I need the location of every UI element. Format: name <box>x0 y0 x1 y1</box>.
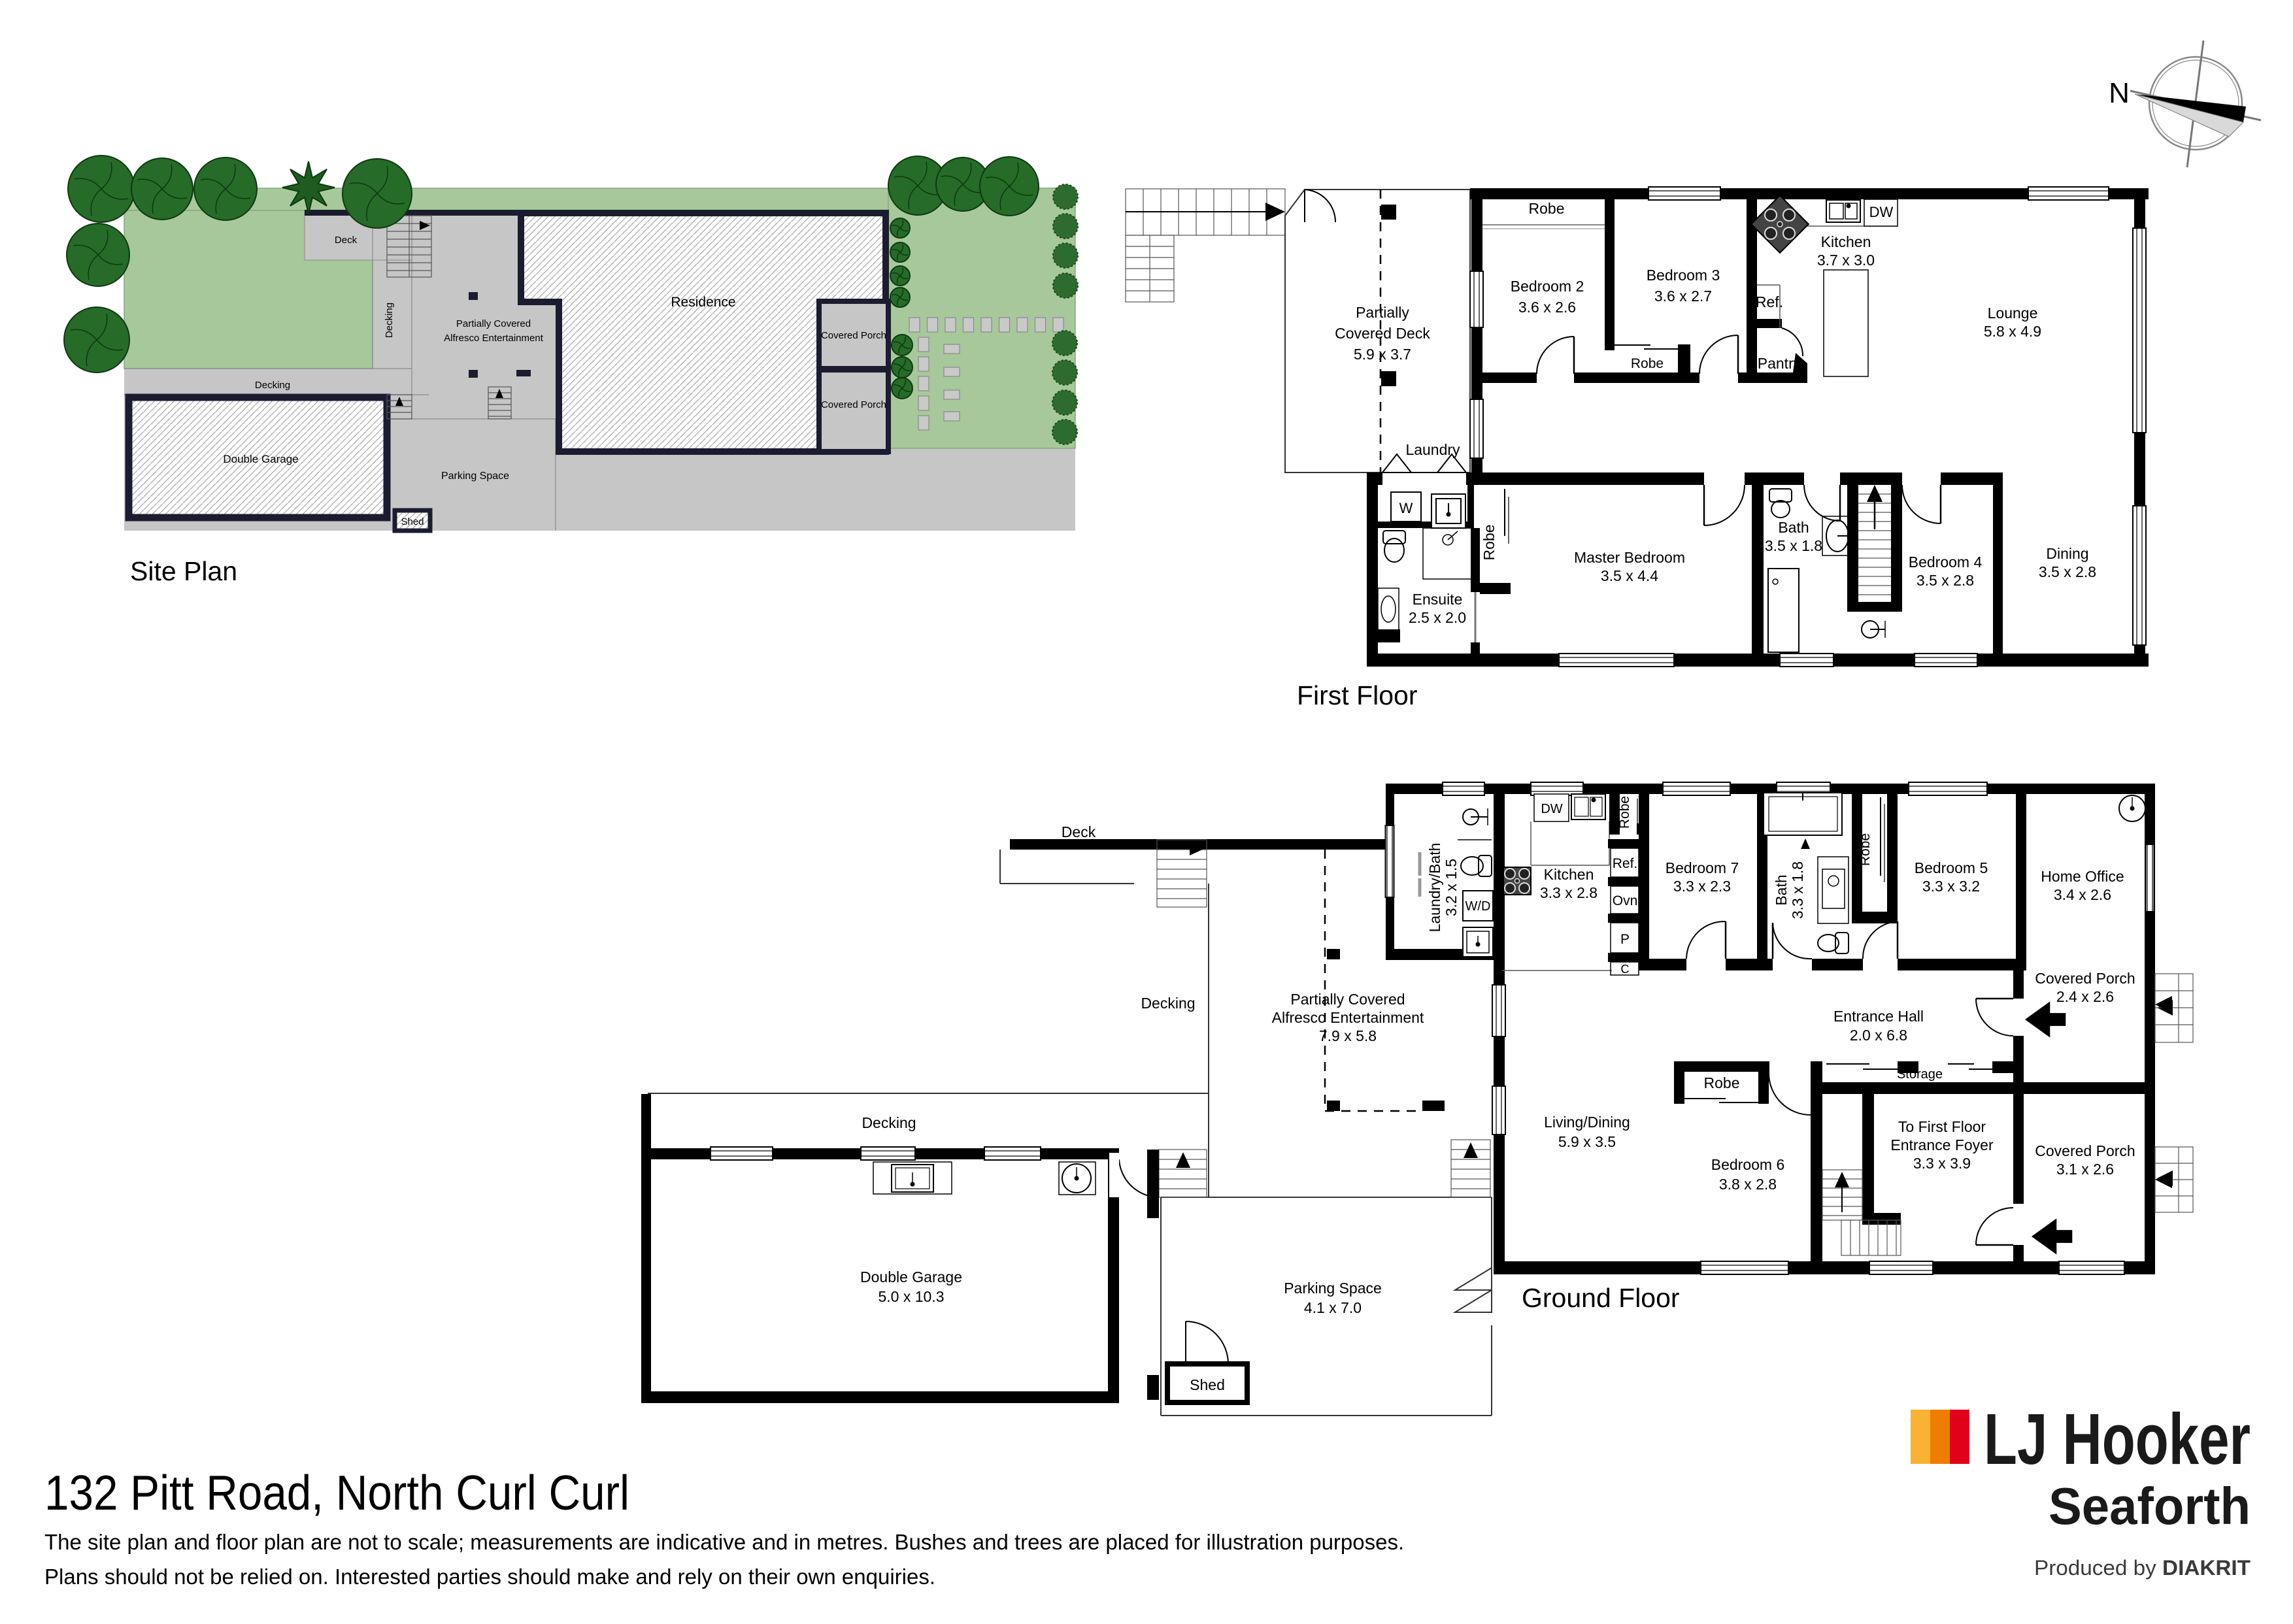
svg-text:3.2 x 1.5: 3.2 x 1.5 <box>1443 859 1460 916</box>
svg-text:First Floor: First Floor <box>1297 680 1418 710</box>
svg-text:3.3 x 1.8: 3.3 x 1.8 <box>1789 861 1806 919</box>
svg-text:Living/Dining: Living/Dining <box>1544 1114 1630 1131</box>
svg-text:Shed: Shed <box>1190 1376 1225 1393</box>
svg-text:Seaforth: Seaforth <box>2049 1477 2251 1535</box>
svg-text:3.6 x 2.6: 3.6 x 2.6 <box>1518 299 1576 316</box>
svg-text:5.9 x 3.7: 5.9 x 3.7 <box>1354 346 1411 363</box>
svg-text:Ref.: Ref. <box>1756 293 1783 310</box>
svg-text:Robe: Robe <box>1481 525 1498 561</box>
svg-text:Robe: Robe <box>1529 200 1565 217</box>
svg-text:7.9 x 5.8: 7.9 x 5.8 <box>1319 1027 1377 1044</box>
svg-text:Laundry: Laundry <box>1405 441 1460 458</box>
svg-text:Parking Space: Parking Space <box>441 471 509 482</box>
svg-text:3.7 x 3.0: 3.7 x 3.0 <box>1817 252 1875 269</box>
svg-text:Kitchen: Kitchen <box>1544 866 1594 883</box>
svg-text:Master Bedroom: Master Bedroom <box>1574 549 1685 566</box>
svg-text:3.8 x 2.8: 3.8 x 2.8 <box>1719 1176 1777 1193</box>
svg-text:Laundry/Bath: Laundry/Bath <box>1426 843 1443 933</box>
svg-text:Pantry: Pantry <box>1758 355 1801 372</box>
svg-text:Partially Covered: Partially Covered <box>1290 991 1405 1008</box>
svg-text:Partially: Partially <box>1356 304 1409 321</box>
svg-text:Decking: Decking <box>384 303 395 338</box>
svg-text:3.6 x 2.7: 3.6 x 2.7 <box>1654 288 1712 305</box>
svg-text:Shed: Shed <box>401 516 424 527</box>
svg-text:Entrance Foyer: Entrance Foyer <box>1890 1136 1994 1153</box>
svg-text:5.9 x 3.5: 5.9 x 3.5 <box>1558 1133 1616 1150</box>
svg-text:5.8 x 4.9: 5.8 x 4.9 <box>1984 323 2041 340</box>
svg-text:Bedroom 5: Bedroom 5 <box>1915 859 1988 876</box>
svg-text:Covered Porch: Covered Porch <box>2035 970 2135 987</box>
svg-text:3.4 x 2.6: 3.4 x 2.6 <box>2054 886 2111 903</box>
svg-text:DW: DW <box>1541 802 1562 816</box>
svg-text:Robe: Robe <box>1858 833 1873 866</box>
svg-text:Ensuite: Ensuite <box>1413 591 1463 608</box>
svg-text:To First Floor: To First Floor <box>1898 1118 1986 1135</box>
svg-text:Kitchen: Kitchen <box>1821 233 1871 250</box>
svg-text:Double Garage: Double Garage <box>223 453 298 465</box>
svg-text:2.4 x 2.6: 2.4 x 2.6 <box>2056 988 2114 1005</box>
svg-text:Bath: Bath <box>1778 519 1809 536</box>
svg-text:3.5 x 4.4: 3.5 x 4.4 <box>1601 567 1658 584</box>
svg-text:3.3 x 2.8: 3.3 x 2.8 <box>1540 884 1598 901</box>
svg-text:LJ Hooker: LJ Hooker <box>1984 1399 2251 1480</box>
svg-text:Deck: Deck <box>335 235 358 246</box>
svg-text:3.3 x 3.2: 3.3 x 3.2 <box>1922 878 1980 895</box>
svg-text:3.5 x 1.8: 3.5 x 1.8 <box>1765 537 1822 554</box>
svg-text:Robe: Robe <box>1704 1074 1740 1091</box>
svg-text:P: P <box>1620 932 1630 947</box>
svg-text:Ref.: Ref. <box>1613 856 1638 871</box>
svg-text:Entrance Hall: Entrance Hall <box>1833 1008 1924 1025</box>
svg-text:Decking: Decking <box>255 380 290 391</box>
svg-text:W/D: W/D <box>1465 899 1491 914</box>
svg-text:Bedroom 2: Bedroom 2 <box>1511 278 1584 295</box>
svg-text:Bedroom 4: Bedroom 4 <box>1909 554 1983 571</box>
svg-text:DW: DW <box>1869 204 1894 220</box>
svg-text:Ground Floor: Ground Floor <box>1522 1283 1680 1313</box>
svg-text:3.1 x 2.6: 3.1 x 2.6 <box>2056 1161 2114 1178</box>
svg-text:Alfresco Entertainment: Alfresco Entertainment <box>1272 1009 1424 1026</box>
svg-text:C: C <box>1621 963 1630 976</box>
svg-text:Bedroom 6: Bedroom 6 <box>1711 1156 1785 1173</box>
svg-text:Alfresco Entertainment: Alfresco Entertainment <box>444 333 544 344</box>
svg-text:3.5 x 2.8: 3.5 x 2.8 <box>1916 572 1974 589</box>
svg-text:3.3 x 2.3: 3.3 x 2.3 <box>1673 878 1731 895</box>
svg-text:W: W <box>1399 500 1413 516</box>
svg-text:2.5 x 2.0: 2.5 x 2.0 <box>1409 609 1466 626</box>
svg-text:Dining: Dining <box>2046 545 2088 562</box>
svg-text:Covered Porch: Covered Porch <box>821 399 886 410</box>
svg-text:Double Garage: Double Garage <box>860 1268 962 1285</box>
svg-text:Partially Covered: Partially Covered <box>456 318 531 329</box>
svg-text:Covered Deck: Covered Deck <box>1335 325 1430 342</box>
svg-text:Decking: Decking <box>862 1114 916 1131</box>
svg-text:Covered Porch: Covered Porch <box>2035 1142 2135 1159</box>
svg-text:2.0 x 6.8: 2.0 x 6.8 <box>1850 1027 1907 1044</box>
svg-text:Bedroom 3: Bedroom 3 <box>1647 267 1720 284</box>
svg-text:3.3 x 3.9: 3.3 x 3.9 <box>1913 1155 1971 1172</box>
svg-text:Site Plan: Site Plan <box>130 556 237 586</box>
svg-text:Storage: Storage <box>1897 1067 1943 1082</box>
svg-text:Produced by DIAKRIT: Produced by DIAKRIT <box>2034 1556 2251 1580</box>
svg-text:Ovn: Ovn <box>1613 893 1638 908</box>
svg-text:Bath: Bath <box>1773 874 1790 905</box>
svg-text:Bedroom 7: Bedroom 7 <box>1665 859 1739 876</box>
svg-text:Robe: Robe <box>1631 356 1664 371</box>
svg-text:Lounge: Lounge <box>1988 305 2038 322</box>
svg-text:Covered Porch: Covered Porch <box>821 330 886 341</box>
svg-text:3.5 x 2.8: 3.5 x 2.8 <box>2039 563 2096 580</box>
svg-text:Plans should not be relied on.: Plans should not be relied on. Intereste… <box>44 1565 935 1589</box>
svg-text:Home Office: Home Office <box>2041 868 2124 885</box>
svg-text:Robe: Robe <box>1617 796 1632 829</box>
svg-text:Deck: Deck <box>1062 823 1096 840</box>
svg-text:Parking Space: Parking Space <box>1284 1280 1382 1297</box>
svg-text:The site plan and floor plan a: The site plan and floor plan are not to … <box>44 1530 1404 1554</box>
svg-text:Residence: Residence <box>671 295 735 310</box>
svg-text:N: N <box>2109 77 2130 109</box>
svg-text:5.0 x 10.3: 5.0 x 10.3 <box>878 1288 944 1305</box>
svg-text:Decking: Decking <box>1141 995 1195 1012</box>
svg-text:132 Pitt Road, North Curl Curl: 132 Pitt Road, North Curl Curl <box>44 1465 629 1520</box>
svg-text:4.1 x 7.0: 4.1 x 7.0 <box>1304 1299 1362 1316</box>
